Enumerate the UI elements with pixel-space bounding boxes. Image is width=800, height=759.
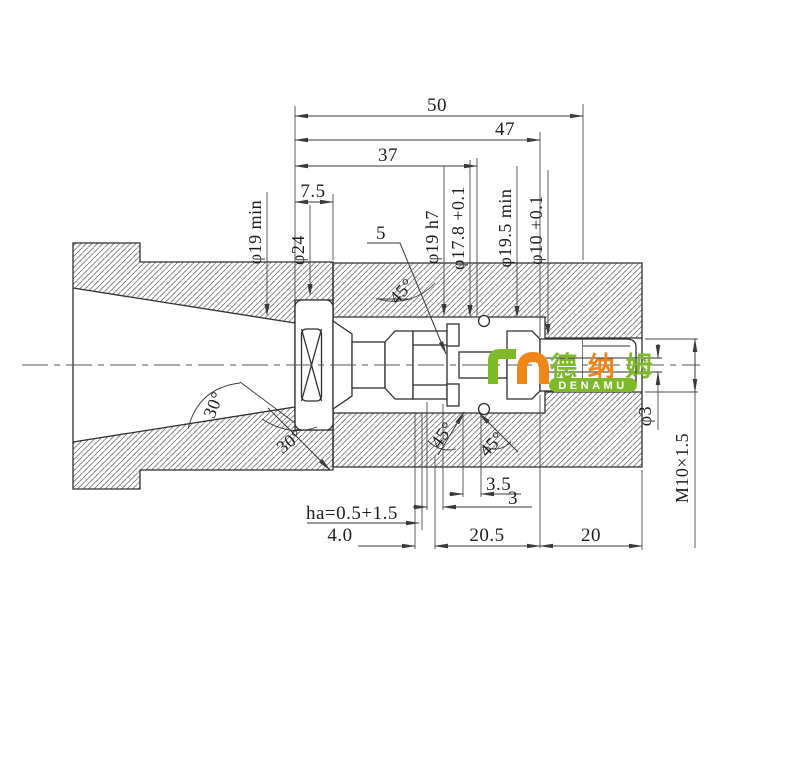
dia-text-phi24: φ24 bbox=[288, 235, 308, 265]
dim-text-20-5: 20.5 bbox=[469, 525, 504, 546]
dim-text-ha: ha=0.5+1.5 bbox=[306, 503, 398, 524]
dim-text-47: 47 bbox=[495, 119, 515, 140]
dim-text-37: 37 bbox=[378, 145, 398, 166]
ball-detail-top bbox=[479, 316, 490, 327]
dia-text-phi178: φ17.8 +0.1 bbox=[448, 186, 468, 270]
dim-text-50: 50 bbox=[427, 95, 447, 116]
logo-cn-char1: 德 bbox=[550, 352, 579, 382]
logo-cn-char3: 姆 bbox=[626, 352, 655, 382]
drawing-canvas: 50 47 37 7.5 5 ha=0.5+1.5 4.0 20.5 20 3.… bbox=[0, 0, 800, 759]
logo-cn-char2: 纳 bbox=[588, 351, 617, 382]
cross-pin-boss-bottom bbox=[447, 384, 459, 406]
engineering-drawing: 50 47 37 7.5 5 ha=0.5+1.5 4.0 20.5 20 3.… bbox=[0, 0, 800, 759]
dia-text-phi195min: φ19.5 min bbox=[495, 189, 515, 268]
ball-detail-bottom bbox=[479, 404, 490, 415]
logo-latin-text: DENAMU bbox=[558, 380, 627, 392]
cross-pin-boss-top bbox=[447, 324, 459, 346]
dim-text-20: 20 bbox=[581, 525, 601, 546]
dia-text-phi10: φ10 +0.1 bbox=[526, 195, 546, 265]
dim-text-7-5: 7.5 bbox=[300, 181, 325, 202]
logo-chinese-text: 德 纳 姆 bbox=[550, 351, 655, 382]
dia-text-phi19h7: φ19 h7 bbox=[422, 210, 442, 264]
thread-text-m10: M10×1.5 bbox=[672, 433, 692, 503]
dia-text-phi19min: φ19 min bbox=[245, 200, 265, 264]
dim-text-5: 5 bbox=[376, 223, 386, 244]
dim-text-3: 3 bbox=[508, 488, 518, 509]
dia-text-phi3: φ3 bbox=[635, 406, 655, 426]
dim-text-4-0: 4.0 bbox=[327, 525, 352, 546]
